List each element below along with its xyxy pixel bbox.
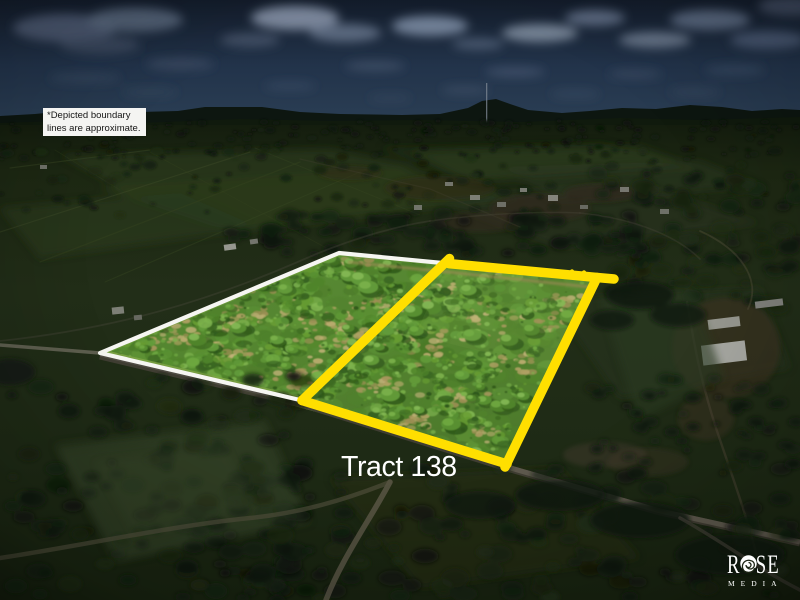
svg-text:S: S	[756, 552, 766, 579]
svg-text:MEDIA: MEDIA	[728, 579, 783, 588]
svg-text:R: R	[727, 552, 740, 579]
svg-text:E: E	[767, 552, 778, 579]
